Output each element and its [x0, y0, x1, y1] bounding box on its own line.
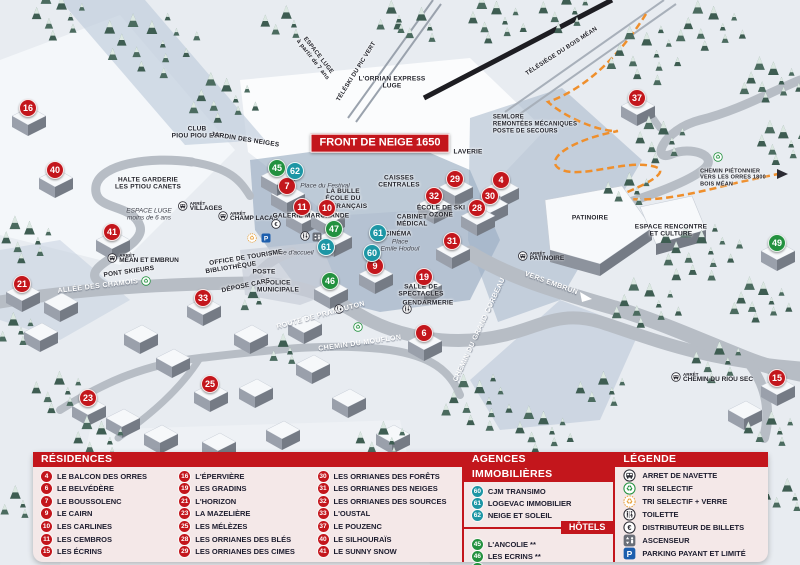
svg-text:♻: ♻	[626, 484, 633, 493]
legend-item: 19LES GRADINS	[179, 483, 317, 496]
legend-key-label: TOILETTE	[642, 510, 678, 519]
hotels-header: HÔTELS	[561, 521, 614, 534]
legend-item-number: 41	[318, 546, 329, 557]
legend-item-number: 15	[41, 546, 52, 557]
legend-key-item: TOILETTE	[623, 508, 760, 521]
legend-panel: RÉSIDENCES 4LE BALCON DES ORRES6LE BELVÉ…	[33, 452, 768, 562]
legend-item-label: L'OUSTAL	[334, 509, 371, 518]
legend-item-label: LE BALCON DES ORRES	[57, 472, 147, 481]
legend-item-label: CJM TRANSIMO	[488, 487, 546, 496]
legend-item-number: 19	[179, 483, 190, 494]
legend-item: 28LES ORRIANES DES BLÉS	[179, 533, 317, 546]
recycle-green-icon: ♻	[623, 482, 636, 495]
legend-item: 15LES ÉCRINS	[41, 545, 179, 558]
legend-item-number: 33	[318, 508, 329, 519]
svg-text:P: P	[627, 549, 633, 559]
legend-item-label: NEIGE ET SOLEIL	[488, 511, 552, 520]
legend-item: 46LES ECRINS **	[472, 550, 606, 562]
legend-item: 7LE BOUSSOLENC	[41, 495, 179, 508]
legend-item-number: 11	[41, 534, 52, 545]
legend-item-label: LE SILHOURAÏS	[334, 535, 392, 544]
legend-item: 21L'HORIZON	[179, 495, 317, 508]
legend-item-number: 28	[179, 534, 190, 545]
legend-item-number: 60	[472, 486, 483, 497]
legend-item-label: LES GRADINS	[195, 484, 246, 493]
legend-item: 37LE POUZENC	[318, 520, 456, 533]
euro-icon: €	[623, 521, 636, 534]
legend-item: 41LE SUNNY SNOW	[318, 545, 456, 558]
legend-item-number: 29	[179, 546, 190, 557]
legend-key-label: ASCENSEUR	[642, 536, 689, 545]
legend-item-number: 37	[318, 521, 329, 532]
svg-text:€: €	[628, 524, 632, 532]
legend-item-label: LE BELVÉDÈRE	[57, 484, 114, 493]
resort-map: ♻♻♻♻P€ ARRÊTVILLAGESARRÊTCHAMP LACASARRÊ…	[0, 0, 800, 565]
legend-item: 29LES ORRIANES DES CIMES	[179, 545, 317, 558]
legend-item-label: LES ORRIANES DES NEIGES	[334, 484, 438, 493]
legend-item-number: 45	[472, 539, 483, 550]
legend-key-item: ASCENSEUR	[623, 534, 760, 547]
parking-icon: P	[623, 547, 636, 560]
legend-key-label: DISTRIBUTEUR DE BILLETS	[642, 523, 744, 532]
legend-item-label: LES CEMBROS	[57, 535, 112, 544]
legend-item-label: LA MAZELIÈRE	[195, 509, 250, 518]
legend-item-number: 16	[179, 471, 190, 482]
legend-item-label: L'HORIZON	[195, 497, 236, 506]
residences-section: RÉSIDENCES 4LE BALCON DES ORRES6LE BELVÉ…	[33, 452, 462, 562]
agences-section: AGENCES IMMOBILIÈRES 60CJM TRANSIMO61LOG…	[462, 452, 614, 562]
agences-header: AGENCES IMMOBILIÈRES	[464, 452, 614, 482]
elevator-icon	[623, 534, 636, 547]
legend-item-label: LE SUNNY SNOW	[334, 547, 397, 556]
legend-item: 9LE CAIRN	[41, 508, 179, 521]
legend-item: 16L'ÉPERVIÈRE	[179, 470, 317, 483]
legend-item: 62NEIGE ET SOLEIL	[472, 509, 606, 521]
legend-item-label: LES ECRINS **	[488, 552, 541, 561]
legend-item-label: LE POUZENC	[334, 522, 382, 531]
legende-section: LÉGENDE ARRET DE NAVETTE♻TRI SELECTIF♻TR…	[613, 452, 768, 562]
legend-item-label: LE BOUSSOLENC	[57, 497, 122, 506]
legend-item: 40LE SILHOURAÏS	[318, 533, 456, 546]
agences-items: 60CJM TRANSIMO61LOGEVAC IMMOBILIER62NEIG…	[464, 482, 614, 523]
legend-item-number: 46	[472, 551, 483, 562]
legend-item-number: 30	[318, 471, 329, 482]
legend-key-item: €DISTRIBUTEUR DE BILLETS	[623, 521, 760, 534]
legend-key-item: ♻TRI SELECTIF	[623, 482, 760, 495]
legend-key-label: TRI SELECTIF	[642, 484, 692, 493]
legend-item: 45L'ANCOLIE **	[472, 538, 606, 550]
legend-item-number: 6	[41, 483, 52, 494]
legend-item-label: L'ANCOLIE **	[488, 540, 536, 549]
legend-item-label: LES CARLINES	[57, 522, 112, 531]
legend-item: 4LE BALCON DES ORRES	[41, 470, 179, 483]
legend-item: 32LES ORRIANES DES SOURCES	[318, 495, 456, 508]
legend-item-label: LE CAIRN	[57, 509, 92, 518]
legend-item-number: 61	[472, 498, 483, 509]
legend-key-item: ♻TRI SELECTIF + VERRE	[623, 495, 760, 508]
legend-item-label: LES ORRIANES DES CIMES	[195, 547, 295, 556]
residences-items: 4LE BALCON DES ORRES6LE BELVÉDÈRE7LE BOU…	[33, 467, 462, 562]
legend-item-label: LES MÉLÈZES	[195, 522, 247, 531]
legend-item-label: L'ÉPERVIÈRE	[195, 472, 244, 481]
legend-item-number: 4	[41, 471, 52, 482]
legende-header: LÉGENDE	[615, 452, 768, 467]
legend-item-number: 21	[179, 496, 190, 507]
hotels-items: 45L'ANCOLIE **46LES ECRINS **47L'ESCALE …	[464, 535, 614, 565]
legend-key-item: ARRET DE NAVETTE	[623, 469, 760, 482]
recycle-yellow-icon: ♻	[623, 495, 636, 508]
legend-item-label: LES ORRIANES DES BLÉS	[195, 535, 291, 544]
legend-item-number: 40	[318, 534, 329, 545]
legend-item: 60CJM TRANSIMO	[472, 485, 606, 497]
legend-key-label: ARRET DE NAVETTE	[642, 471, 717, 480]
legend-item: 61LOGEVAC IMMOBILIER	[472, 497, 606, 509]
legend-item-number: 25	[179, 521, 190, 532]
legend-item-label: LES ÉCRINS	[57, 547, 102, 556]
legend-item: 31LES ORRIANES DES NEIGES	[318, 483, 456, 496]
wc-icon	[623, 508, 636, 521]
svg-text:♻: ♻	[626, 497, 633, 506]
legend-item: 6LE BELVÉDÈRE	[41, 483, 179, 496]
residences-header: RÉSIDENCES	[33, 452, 462, 467]
legend-item-number: 23	[179, 508, 190, 519]
legend-item-number: 9	[41, 508, 52, 519]
legend-item-number: 7	[41, 496, 52, 507]
legend-item-label: LES ORRIANES DES FORÊTS	[334, 472, 440, 481]
legend-item: 25LES MÉLÈZES	[179, 520, 317, 533]
legend-item-number: 32	[318, 496, 329, 507]
legend-item: 10LES CARLINES	[41, 520, 179, 533]
legend-key-item: PPARKING PAYANT ET LIMITÉ	[623, 547, 760, 560]
legend-item-label: LES ORRIANES DES SOURCES	[334, 497, 447, 506]
legend-item-number: 10	[41, 521, 52, 532]
hotels-divider: HÔTELS	[464, 527, 614, 529]
legend-item-label: LOGEVAC IMMOBILIER	[488, 499, 572, 508]
legend-item-number: 62	[472, 510, 483, 521]
legend-item: 30LES ORRIANES DES FORÊTS	[318, 470, 456, 483]
legend-item: 11LES CEMBROS	[41, 533, 179, 546]
legend-item-number: 31	[318, 483, 329, 494]
legende-items: ARRET DE NAVETTE♻TRI SELECTIF♻TRI SELECT…	[615, 467, 768, 562]
legend-key-label: PARKING PAYANT ET LIMITÉ	[642, 549, 745, 558]
bus-icon	[623, 469, 636, 482]
legend-item: 33L'OUSTAL	[318, 508, 456, 521]
legend-item: 23LA MAZELIÈRE	[179, 508, 317, 521]
legend-key-label: TRI SELECTIF + VERRE	[642, 497, 727, 506]
